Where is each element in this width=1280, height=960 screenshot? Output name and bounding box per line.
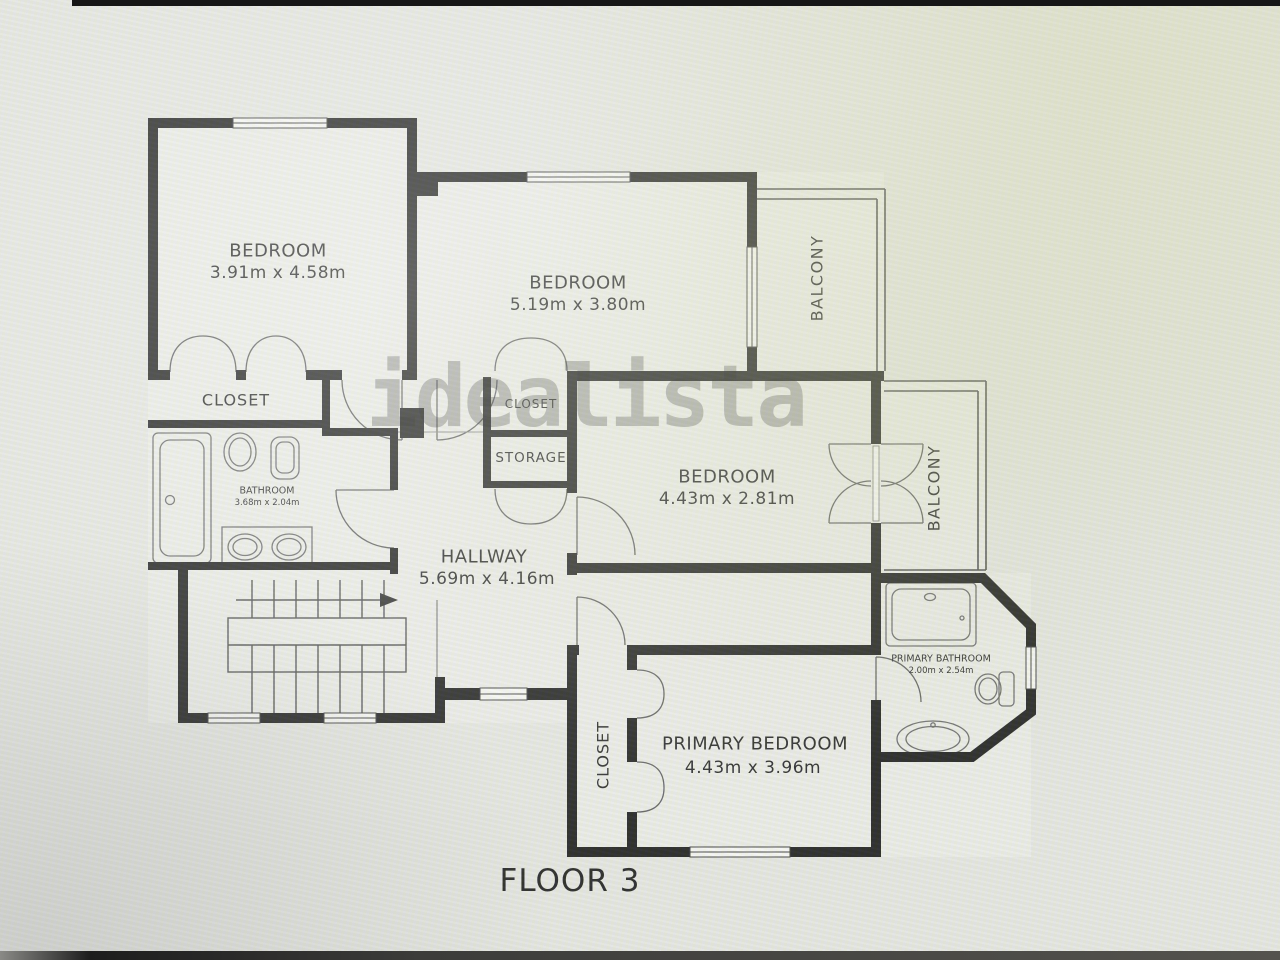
screen-edge-bottom xyxy=(0,951,1280,960)
storage-label: STORAGE xyxy=(495,450,566,466)
stairs-window-1 xyxy=(208,713,260,723)
floor-plan-photo: idealista BEDROOM 3.91m x 4.58m BEDROOM … xyxy=(0,0,1280,960)
screen-edge-top xyxy=(72,0,1280,6)
hallway-dims: 5.69m x 4.16m xyxy=(419,569,555,589)
bathroom-dims: 3.68m x 2.04m xyxy=(235,498,300,508)
closet-bedroom1-label: CLOSET xyxy=(202,391,270,410)
balcony-top-label: BALCONY xyxy=(808,235,827,322)
bedroom2-side-window xyxy=(747,247,757,347)
bedroom3-dims: 4.43m x 2.81m xyxy=(659,489,795,509)
bedroom3-label: BEDROOM xyxy=(678,467,775,488)
hallway-window xyxy=(480,688,527,700)
closet-primary-label: CLOSET xyxy=(594,721,613,789)
primary-bedroom-label: PRIMARY BEDROOM xyxy=(662,734,848,755)
idealista-watermark: idealista xyxy=(366,354,805,440)
floor-plan-drawing xyxy=(0,0,1280,960)
primary-bedroom-dims: 4.43m x 3.96m xyxy=(685,758,821,778)
primary-bathroom-label: PRIMARY BATHROOM xyxy=(891,654,991,665)
balcony-right-label: BALCONY xyxy=(925,445,944,532)
closet-hall-label: CLOSET xyxy=(505,397,558,411)
bedroom2-label: BEDROOM xyxy=(529,273,626,294)
bedroom2-dims: 5.19m x 3.80m xyxy=(510,295,646,315)
bedroom1-dims: 3.91m x 4.58m xyxy=(210,263,346,283)
bathroom-label: BATHROOM xyxy=(240,486,295,497)
bedroom1-label: BEDROOM xyxy=(229,241,326,262)
primary-bathroom-window xyxy=(1026,647,1036,689)
bedroom2-window xyxy=(527,172,630,182)
primary-bedroom-window xyxy=(690,847,790,857)
floor-title: FLOOR 3 xyxy=(500,863,641,899)
stairs-window-2 xyxy=(324,713,376,723)
french-door-threshold xyxy=(873,446,879,521)
primary-bathroom-dims: 2.00m x 2.54m xyxy=(909,666,974,676)
bedroom1-window xyxy=(233,118,327,128)
hallway-label: HALLWAY xyxy=(441,547,527,568)
